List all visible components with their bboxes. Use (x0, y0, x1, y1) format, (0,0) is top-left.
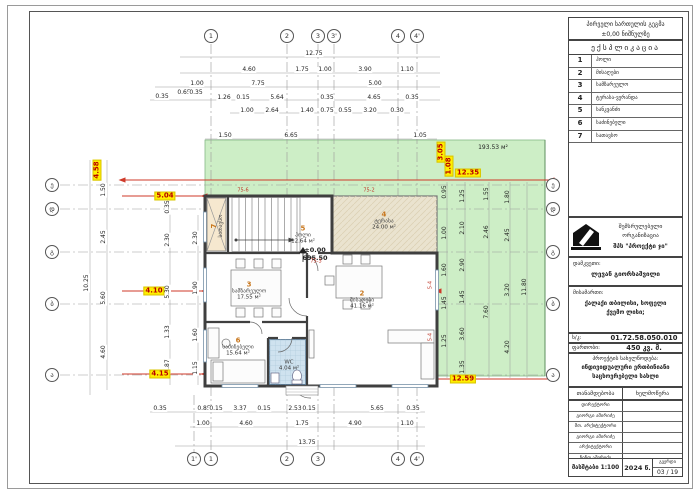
dim-label: 6.65 (283, 133, 298, 139)
dim-label: 1.25 (460, 188, 466, 203)
dim-label: 1.00 (239, 108, 254, 114)
area-label: ფართობი: (569, 344, 606, 352)
grid-bubble: 3' (327, 29, 341, 43)
room-label: 4ტერასა24.00 м² (372, 211, 396, 232)
signature-row: არქიტექტორი (569, 443, 682, 454)
dim-label: 2.30 (165, 232, 171, 247)
dim-label: 2.64 (264, 108, 279, 114)
opening-tag: 5-4 (429, 281, 434, 289)
room-number: 5 (291, 225, 315, 233)
client-name: ლევან გიორხაშვილი (573, 271, 678, 278)
legend-label: საძინებელი (592, 118, 682, 130)
scale-label: მასშტაბი 1:100 (569, 459, 623, 476)
project-name-line1: ინდივიდუალური ერთბინიანი (569, 364, 682, 373)
legend-label: ჰოლი (592, 55, 682, 67)
grid-bubble: 2 (280, 452, 294, 466)
dim-label: 4.65 (366, 95, 381, 101)
legend-row: 4ტერასა-ვერანდა (569, 93, 682, 106)
legend-row: 2მისაღები (569, 68, 682, 81)
dim-label: 4.60 (238, 421, 253, 427)
legend-num: 1 (569, 55, 592, 67)
grid-bubble: 1 (204, 452, 218, 466)
room-label: 2მისაღები41.16 м² (350, 290, 374, 311)
dim-label: 0.35 (152, 406, 167, 412)
signature-cell (623, 443, 682, 453)
room-name: სათავსო (218, 215, 224, 238)
dim-label: 0.35 (405, 406, 420, 412)
page-label: გვერდი (653, 459, 682, 468)
role-text: დირექტორი (569, 401, 623, 411)
project-name-box: პროექტის სახელწოდება: ინდივიდუალური ერთბ… (568, 353, 683, 387)
room-label: 5ჰოლი12.64 м² (291, 225, 315, 246)
dim-label: 2.10 (460, 220, 466, 235)
legend-num: 6 (569, 118, 592, 130)
legend-num: 3 (569, 80, 592, 92)
dim-label: 2.90 (460, 257, 466, 272)
dim-label: 4.20 (505, 339, 511, 354)
legend-table: ექსპლიკაცია 1ჰოლი 2მისაღები 3სამზარეულო … (568, 40, 683, 217)
dim-label: 0.15 (208, 406, 223, 412)
dim-label: 3.20 (505, 282, 511, 297)
legend-num: 2 (569, 68, 592, 80)
legend-label: სანკვანძი (592, 105, 682, 117)
dim-label: 0.35 (154, 94, 169, 100)
role-text: გიორგი ამირიძე (569, 412, 623, 422)
company-logo-icon (571, 222, 601, 252)
dim-label: 1.05 (412, 133, 427, 139)
plan-title: პირველი სართულის გეგმა ±0,00 ნიშნულზე (568, 17, 683, 40)
dim-label: 3.37 (232, 406, 247, 412)
plan-title-line2: ±0,00 ნიშნულზე (569, 30, 682, 40)
dim-label: 2.46 (484, 224, 490, 239)
org-label: შემსრულებელი ორგანიზაცია (601, 223, 680, 240)
dim-label: 1.00 (189, 81, 204, 87)
room-label: 7სათავსო (210, 215, 224, 238)
dim-label: 1.60 (193, 327, 199, 342)
area-row: ფართობი: 450 კვ. მ. (568, 343, 683, 353)
dim-label: 0.55 (337, 108, 352, 114)
dim-label: 0.35 (188, 90, 203, 96)
dim-label: 5.04 (154, 192, 175, 201)
role-text: გიორგი ამირიძე (569, 433, 623, 443)
plan-title-line1: პირველი სართულის გეგმა (569, 20, 682, 30)
dim-label: 0.15 (301, 406, 316, 412)
project-label: პროექტის სახელწოდება: (569, 356, 682, 362)
address-box: მისამართი: ქალაქი თბილისი, სოფელი ქვემო … (568, 286, 683, 333)
dim-label: 4.60 (101, 344, 107, 359)
room-number: 4 (372, 211, 396, 219)
dim-label: 5.64 (269, 95, 284, 101)
col-signature: ხელმოწერა (623, 388, 682, 399)
dim-label: 1.80 (505, 189, 511, 204)
grid-bubble: ა (45, 368, 59, 382)
project-name-line2: საცხოვრებელი სახლი (569, 373, 682, 382)
dim-label: 1.40 (299, 108, 314, 114)
dim-label: 1.45 (460, 289, 466, 304)
grid-bubble: 3 (311, 29, 325, 43)
signature-cell (623, 433, 682, 443)
footer-row: მასშტაბი 1:100 2024 წ. გვერდი 03 / 19 (568, 458, 683, 477)
signature-cell (623, 422, 682, 432)
dim-label: 7.75 (250, 81, 265, 87)
legend-num: 7 (569, 131, 592, 143)
col-position: თანამდებობა (569, 388, 623, 399)
dim-label: 1.55 (484, 186, 490, 201)
room-label: 6საძინებელი15.64 м² (222, 337, 253, 358)
dim-label: 0.15 (235, 95, 250, 101)
dim-label: 5.00 (367, 81, 382, 87)
room-number: 7 (210, 215, 218, 238)
legend-row: 5სანკვანძი (569, 105, 682, 118)
opening-tag: 75-3 (310, 260, 321, 265)
dim-label: 1.45 (442, 295, 448, 310)
opening-tag: 75-6 (237, 189, 248, 194)
dim-label: 3.90 (357, 67, 372, 73)
address-line1: ქალაქი თბილისი, სოფელი (573, 300, 678, 309)
legend-row: 1ჰოლი (569, 55, 682, 68)
dim-label: 4.58 (93, 159, 102, 180)
dim-label: 0.75 (319, 108, 334, 114)
legend-title: ექსპლიკაცია (569, 41, 682, 55)
signature-row: მთ. არქიტექტორი (569, 422, 682, 433)
room-label: WC4.04 м² (279, 360, 299, 373)
signature-cell (623, 412, 682, 422)
grid-bubble: 4 (391, 452, 405, 466)
grid-bubble: 3 (311, 452, 325, 466)
dim-label: 7.60 (484, 304, 490, 319)
room-area: 17.55 м² (232, 295, 266, 301)
grid-bubble: გ (45, 245, 59, 259)
address-line2: ქვემო ლისი; (573, 309, 678, 318)
dim-label: 0.35 (165, 199, 171, 214)
grid-bubble: 2 (280, 29, 294, 43)
opening-tag: 5-4 (429, 333, 434, 341)
dim-label: 11.80 (522, 277, 528, 296)
dim-label: 2.45 (505, 227, 511, 242)
legend-label: მისაღები (592, 68, 682, 80)
dim-label: 3.60 (460, 326, 466, 341)
signature-cell (623, 401, 682, 411)
dim-label: 193.53 м² (477, 145, 509, 151)
grid-bubble: ე (546, 178, 560, 192)
dim-label: ±0.00 (303, 247, 326, 254)
dim-label: 4.90 (347, 421, 362, 427)
room-area: 41.16 м² (350, 304, 374, 310)
dim-label: 1.25 (442, 333, 448, 348)
signature-row: გიორგი ამირიძე (569, 412, 682, 423)
legend-label: სამზარეულო (592, 80, 682, 92)
grid-bubble: ბ (546, 297, 560, 311)
legend-num: 5 (569, 105, 592, 117)
area-value: 450 კვ. მ. (606, 344, 682, 352)
room-area: 24.00 м² (372, 225, 396, 231)
room-number: 2 (350, 290, 374, 298)
dim-label: 1.90 (193, 280, 199, 295)
dim-label: 1.75 (294, 421, 309, 427)
room-area: 15.64 м² (222, 351, 253, 357)
dim-label: 0.95 (442, 184, 448, 199)
drawing-sheet: 12.754.601.751.003.901.101.007.755.000.3… (0, 0, 700, 495)
dim-label: 0.35 (319, 95, 334, 101)
dim-label: 12.75 (304, 51, 323, 57)
cadastral-label: ს/კ: (569, 334, 606, 342)
dim-label: 5.60 (101, 290, 107, 305)
dim-label: 0.35 (404, 95, 419, 101)
dim-label: 1.26 (216, 95, 231, 101)
legend-row: 7სათავსო (569, 131, 682, 144)
org-name: შპს "პროექტი ჯი" (601, 242, 680, 251)
signature-table: დირექტორი გიორგი ამირიძე მთ. არქიტექტორი… (568, 400, 683, 466)
page-cell: გვერდი 03 / 19 (653, 459, 682, 476)
grid-bubble: 1 (204, 29, 218, 43)
dim-label: 1.00 (317, 67, 332, 73)
grid-bubble: დ (45, 202, 59, 216)
grid-bubble: 1' (187, 452, 201, 466)
role-text: არქიტექტორი (569, 443, 623, 453)
dim-label: 4.10 (143, 287, 164, 296)
dim-label: 1.33 (165, 324, 171, 339)
grid-bubble: დ (546, 202, 560, 216)
legend-num: 4 (569, 93, 592, 105)
room-area: 12.64 м² (291, 239, 315, 245)
grid-bubble: ე (45, 178, 59, 192)
dim-label: 2.30 (193, 230, 199, 245)
signature-header: თანამდებობა ხელმოწერა (568, 387, 683, 400)
dim-label: 12.59 (450, 375, 476, 384)
opening-tag: 75-2 (363, 189, 374, 194)
dim-label: 1.10 (399, 421, 414, 427)
legend-row: 6საძინებელი (569, 118, 682, 131)
dim-label: 2.45 (101, 229, 107, 244)
dim-label: 0.30 (389, 108, 404, 114)
dim-label: 4.60 (241, 67, 256, 73)
grid-bubble: ბ (45, 297, 59, 311)
dim-label: 1.50 (101, 182, 107, 197)
dim-label: 0.15 (256, 406, 271, 412)
signature-row: დირექტორი (569, 401, 682, 412)
dim-label: 1.00 (442, 225, 448, 240)
dim-label: 12.35 (455, 169, 481, 178)
dim-label: 1.08 (445, 155, 454, 176)
grid-bubble: 4 (391, 29, 405, 43)
dim-label: 4.15 (149, 370, 170, 379)
dim-label: 1.15 (193, 360, 199, 375)
dim-label: 1.60 (442, 262, 448, 277)
dim-label: 13.75 (297, 440, 316, 446)
cadastral-value: 01.72.58.050.010 (606, 334, 682, 342)
org-box: შემსრულებელი ორგანიზაცია შპს "პროექტი ჯი… (568, 217, 683, 257)
dim-label: 1.00 (195, 421, 210, 427)
room-number: 6 (222, 337, 253, 345)
dim-label: 10.25 (84, 273, 90, 292)
role-text: მთ. არქიტექტორი (569, 422, 623, 432)
legend-label: ტერასა-ვერანდა (592, 93, 682, 105)
grid-bubble: 4' (410, 29, 424, 43)
client-label: დამკვეთი: (573, 261, 678, 267)
dim-label: 1.35 (460, 359, 466, 374)
client-box: დამკვეთი: ლევან გიორხაშვილი (568, 257, 683, 286)
legend-row: 3სამზარეულო (569, 80, 682, 93)
address-label: მისამართი: (573, 290, 678, 296)
dim-label: 1.75 (294, 67, 309, 73)
dim-label: 5.65 (369, 406, 384, 412)
dim-label: 3.20 (362, 108, 377, 114)
page-value: 03 / 19 (653, 468, 682, 478)
cadastral-row: ს/კ: 01.72.58.050.010 (568, 333, 683, 343)
signature-row: გიორგი ამირიძე (569, 433, 682, 444)
room-number: 3 (232, 281, 266, 289)
year-label: 2024 წ. (623, 459, 653, 476)
legend-label: სათავსო (592, 131, 682, 143)
dim-label: 1.10 (399, 67, 414, 73)
grid-bubble: გ (546, 245, 560, 259)
grid-bubble: 4' (410, 452, 424, 466)
room-area: 4.04 м² (279, 366, 299, 372)
room-label: 3სამზარეულო17.55 м² (232, 281, 266, 302)
dim-label: 5.30 (165, 284, 171, 299)
dim-label: 1.50 (217, 133, 232, 139)
grid-bubble: ა (546, 368, 560, 382)
stairs (232, 198, 300, 252)
